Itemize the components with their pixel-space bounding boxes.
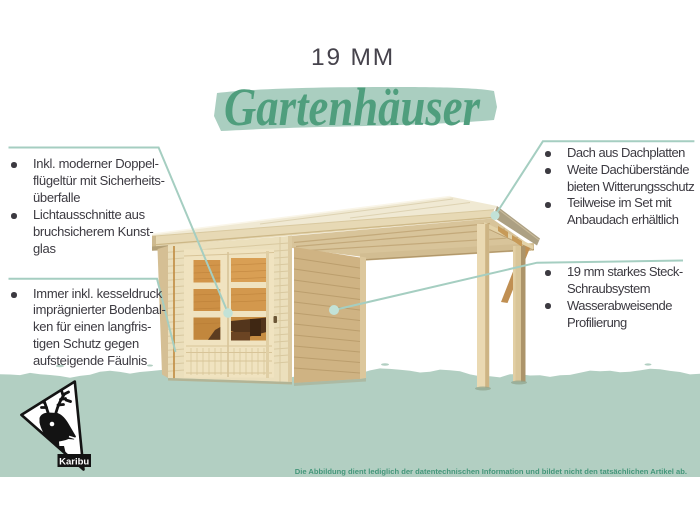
svg-text:Gartenhäuser: Gartenhäuser (224, 77, 481, 137)
